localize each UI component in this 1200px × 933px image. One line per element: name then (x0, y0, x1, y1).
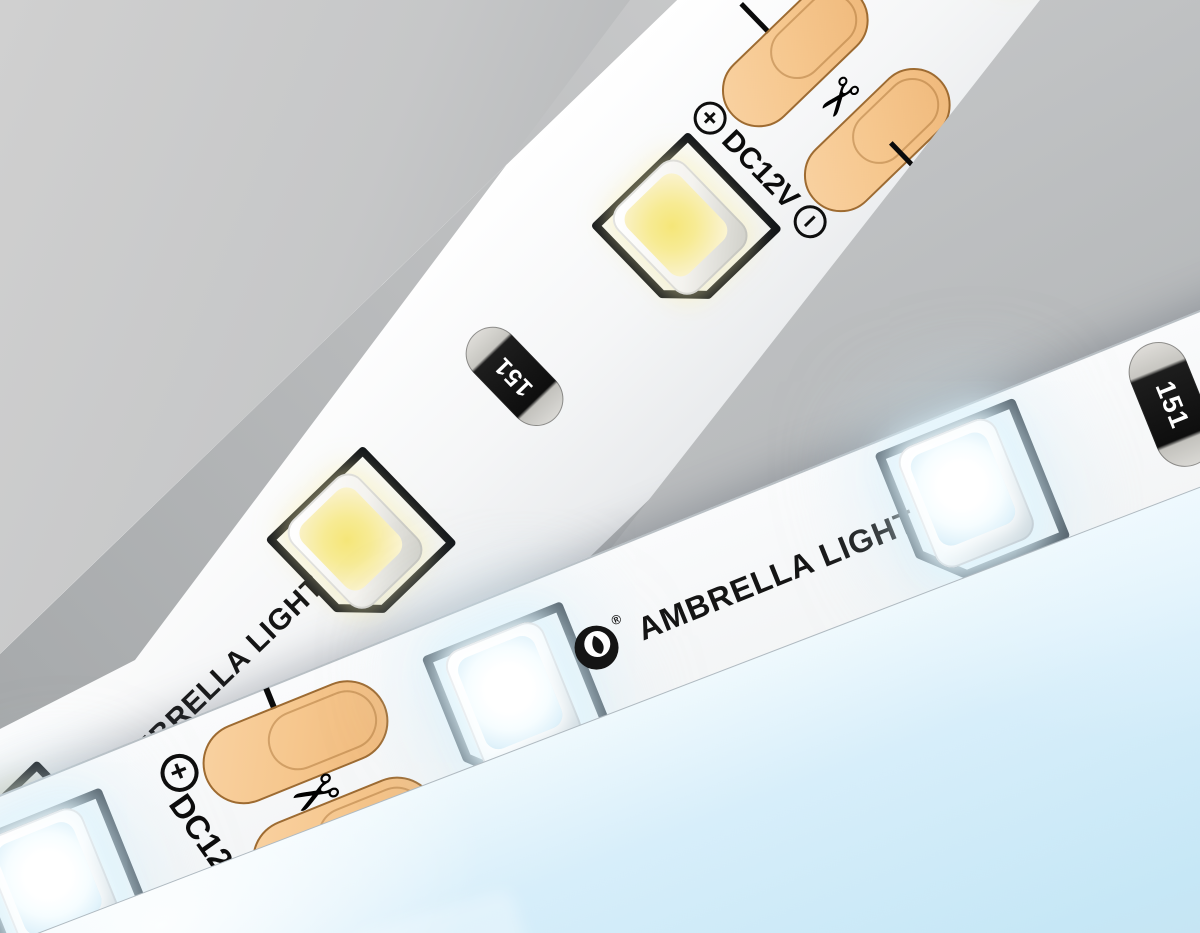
product-photo: ® AMBRELLA LIGHT 151 + DC12V − ✂ (0, 0, 1200, 933)
smd-resistor: 151 (454, 315, 574, 437)
led-module (907, 0, 1117, 18)
light-reflection (348, 888, 554, 933)
resistor-code: 151 (491, 352, 539, 400)
polarity-plus-icon: + (155, 748, 204, 797)
led-outline-icon (907, 0, 1117, 18)
smd-resistor: 151 (1120, 333, 1200, 476)
resistor-code: 151 (1150, 377, 1193, 432)
led-phosphor (907, 428, 1020, 550)
